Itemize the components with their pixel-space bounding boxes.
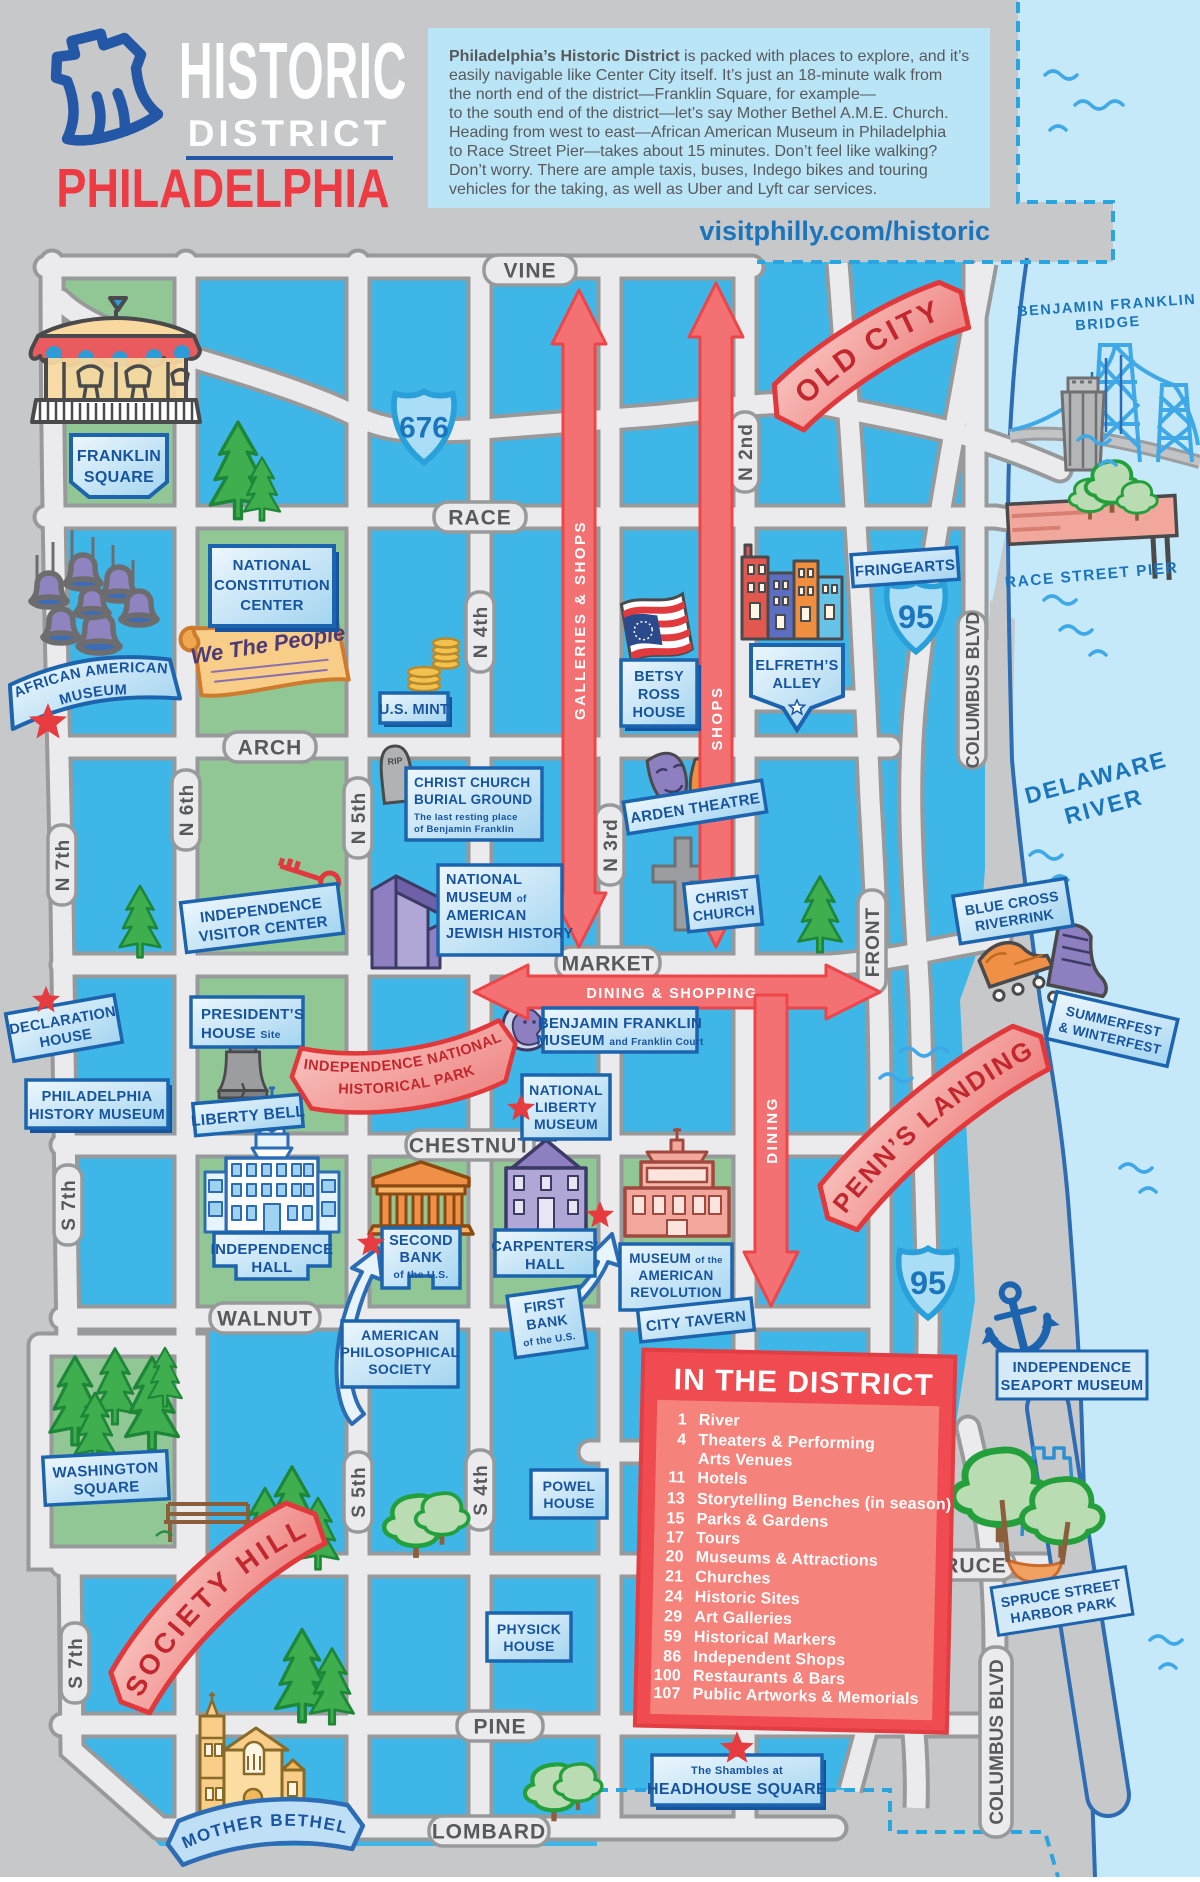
svg-text:INDEPENDENCE: INDEPENDENCE xyxy=(211,1241,334,1258)
svg-text:N 5th: N 5th xyxy=(349,792,370,845)
svg-text:21: 21 xyxy=(665,1568,684,1585)
svg-text:Heading from west to east—Afri: Heading from west to east—African Americ… xyxy=(449,124,946,141)
svg-text:FRONT: FRONT xyxy=(863,907,884,977)
svg-text:GALLERIES & SHOPS: GALLERIES & SHOPS xyxy=(572,520,589,720)
svg-text:PINE: PINE xyxy=(473,1716,526,1739)
svg-text:BANK: BANK xyxy=(399,1250,442,1266)
svg-text:107: 107 xyxy=(653,1685,681,1703)
svg-text:N 3rd: N 3rd xyxy=(601,818,622,872)
svg-text:24: 24 xyxy=(664,1588,683,1605)
svg-text:HOUSE: HOUSE xyxy=(543,1495,594,1511)
svg-text:DINING: DINING xyxy=(764,1096,781,1164)
svg-text:Historic Sites: Historic Sites xyxy=(695,1589,800,1608)
svg-text:LIBERTY: LIBERTY xyxy=(535,1099,597,1115)
svg-text:11: 11 xyxy=(668,1469,686,1486)
svg-text:Tours: Tours xyxy=(696,1530,741,1548)
svg-text:S 7th: S 7th xyxy=(66,1637,87,1688)
svg-text:LOMBARD: LOMBARD xyxy=(432,1821,546,1844)
svg-text:N 4th: N 4th xyxy=(471,606,492,659)
svg-text:ELFRETH’S: ELFRETH’S xyxy=(755,658,838,674)
svg-text:N 6th: N 6th xyxy=(177,784,198,837)
svg-text:Parks & Gardens: Parks & Gardens xyxy=(696,1511,828,1531)
svg-text:Churches: Churches xyxy=(695,1569,771,1588)
svg-text:INDEPENDENCE: INDEPENDENCE xyxy=(1013,1360,1132,1376)
svg-text:Art Galleries: Art Galleries xyxy=(694,1609,792,1628)
svg-text:86: 86 xyxy=(663,1648,682,1665)
svg-text:BETSY: BETSY xyxy=(634,669,684,685)
svg-text:HOUSE: HOUSE xyxy=(503,1638,554,1654)
svg-text:The Shambles at: The Shambles at xyxy=(691,1765,783,1777)
svg-text:S 4th: S 4th xyxy=(471,1464,492,1515)
svg-text:Philadelphia’s Historic Distri: Philadelphia’s Historic District is pack… xyxy=(449,48,969,65)
svg-text:CARPENTERS’: CARPENTERS’ xyxy=(491,1239,598,1255)
svg-text:HALL: HALL xyxy=(525,1257,565,1273)
svg-text:SOCIETY: SOCIETY xyxy=(368,1361,432,1377)
svg-text:SECOND: SECOND xyxy=(389,1233,453,1249)
svg-text:NATIONAL: NATIONAL xyxy=(233,557,312,574)
svg-text:N 7th: N 7th xyxy=(53,839,74,892)
svg-text:ROSS: ROSS xyxy=(638,687,680,703)
svg-text:DINING & SHOPPING: DINING & SHOPPING xyxy=(586,986,757,1002)
svg-text:Arts Venues: Arts Venues xyxy=(698,1451,793,1470)
svg-text:1: 1 xyxy=(678,1411,687,1428)
svg-text:PHILADELPHIA: PHILADELPHIA xyxy=(56,157,389,219)
svg-text:59: 59 xyxy=(663,1628,682,1645)
svg-text:VINE: VINE xyxy=(503,260,556,283)
svg-text:HEADHOUSE SQUARE: HEADHOUSE SQUARE xyxy=(647,1781,827,1798)
svg-text:JEWISH HISTORY: JEWISH HISTORY xyxy=(446,926,573,942)
svg-text:easily navigable like Center C: easily navigable like Center City itself… xyxy=(449,67,942,84)
svg-text:NATIONAL: NATIONAL xyxy=(529,1082,603,1098)
svg-text:MARKET: MARKET xyxy=(562,953,655,976)
svg-text:13: 13 xyxy=(667,1490,686,1507)
svg-text:HISTORIC: HISTORIC xyxy=(179,26,407,115)
svg-text:HOUSE: HOUSE xyxy=(632,705,685,721)
svg-text:95: 95 xyxy=(910,1265,946,1301)
svg-text:95: 95 xyxy=(898,599,934,635)
svg-text:CHRIST CHURCH: CHRIST CHURCH xyxy=(414,775,530,790)
svg-text:20: 20 xyxy=(665,1548,684,1565)
svg-text:S 5th: S 5th xyxy=(349,1466,370,1517)
svg-text:CHESTNUT: CHESTNUT xyxy=(409,1135,531,1158)
svg-text:S 7th: S 7th xyxy=(59,1179,80,1230)
svg-text:vehicles for the taking, as we: vehicles for the taking, as well as Uber… xyxy=(449,181,877,198)
svg-text:4: 4 xyxy=(677,1431,686,1448)
svg-text:CENTER: CENTER xyxy=(240,597,303,614)
svg-text:MUSEUM of: MUSEUM of xyxy=(446,890,527,906)
svg-text:to the south end of the distri: to the south end of the district—let’s s… xyxy=(449,105,949,122)
svg-text:COLUMBUS BLVD: COLUMBUS BLVD xyxy=(987,1659,1008,1824)
svg-text:Don’t worry. There are ample t: Don’t worry. There are ample taxis, buse… xyxy=(449,162,928,179)
svg-text:29: 29 xyxy=(664,1608,683,1625)
svg-text:River: River xyxy=(699,1412,740,1430)
svg-text:REVOLUTION: REVOLUTION xyxy=(630,1285,722,1300)
svg-text:BURIAL GROUND: BURIAL GROUND xyxy=(414,792,532,807)
svg-text:676: 676 xyxy=(399,411,449,444)
svg-text:Hotels: Hotels xyxy=(697,1470,747,1488)
svg-text:ARCH: ARCH xyxy=(238,737,303,760)
svg-text:DISTRICT: DISTRICT xyxy=(188,113,391,154)
svg-text:POWEL: POWEL xyxy=(543,1478,596,1494)
svg-text:100: 100 xyxy=(654,1667,682,1685)
svg-text:AMERICAN: AMERICAN xyxy=(446,908,527,924)
svg-text:CONSTITUTION: CONSTITUTION xyxy=(214,577,330,594)
svg-text:PHYSICK: PHYSICK xyxy=(497,1621,561,1637)
svg-text:N 2nd: N 2nd xyxy=(736,423,757,481)
svg-text:of Benjamin Franklin: of Benjamin Franklin xyxy=(414,824,514,835)
svg-text:visitphilly.com/historic: visitphilly.com/historic xyxy=(699,216,990,246)
svg-text:15: 15 xyxy=(666,1510,685,1527)
svg-text:SQUARE: SQUARE xyxy=(73,1478,140,1498)
svg-text:SHOPS: SHOPS xyxy=(709,685,726,750)
svg-text:MUSEUM: MUSEUM xyxy=(534,1116,598,1132)
svg-text:PHILADELPHIA: PHILADELPHIA xyxy=(42,1089,153,1105)
svg-text:SQUARE: SQUARE xyxy=(84,469,154,486)
svg-text:BENJAMIN FRANKLIN: BENJAMIN FRANKLIN xyxy=(538,1015,702,1032)
svg-text:Historical Markers: Historical Markers xyxy=(694,1629,837,1649)
svg-text:RIP: RIP xyxy=(387,755,403,767)
svg-text:AMERICAN: AMERICAN xyxy=(361,1327,439,1343)
svg-text:ALLEY: ALLEY xyxy=(772,676,821,692)
svg-text:HISTORY MUSEUM: HISTORY MUSEUM xyxy=(29,1107,165,1123)
svg-text:COLUMBUS BLVD: COLUMBUS BLVD xyxy=(963,612,983,769)
svg-text:The last resting place: The last resting place xyxy=(414,812,518,823)
svg-text:NATIONAL: NATIONAL xyxy=(446,872,522,888)
svg-text:RACE: RACE xyxy=(448,507,512,530)
svg-text:Restaurants & Bars: Restaurants & Bars xyxy=(693,1668,845,1688)
svg-text:WALNUT: WALNUT xyxy=(217,1308,313,1331)
svg-text:FRANKLIN: FRANKLIN xyxy=(77,448,161,465)
svg-text:HALL: HALL xyxy=(251,1259,292,1276)
svg-text:17: 17 xyxy=(666,1529,685,1546)
svg-text:Independent Shops: Independent Shops xyxy=(693,1649,845,1669)
svg-text:IN THE DISTRICT: IN THE DISTRICT xyxy=(673,1363,934,1402)
svg-text:PHILOSOPHICAL: PHILOSOPHICAL xyxy=(340,1344,459,1360)
svg-text:to Race Street Pier—takes abou: to Race Street Pier—takes about 15 minut… xyxy=(449,143,937,160)
svg-text:SEAPORT MUSEUM: SEAPORT MUSEUM xyxy=(1001,1378,1144,1394)
svg-text:the north end of the district—: the north end of the district—Franklin S… xyxy=(449,86,876,103)
svg-text:PRESIDENT’S: PRESIDENT’S xyxy=(201,1006,304,1023)
svg-text:U.S. MINT: U.S. MINT xyxy=(379,702,449,718)
svg-text:AMERICAN: AMERICAN xyxy=(638,1268,713,1283)
svg-text:of the U.S.: of the U.S. xyxy=(393,1269,448,1281)
